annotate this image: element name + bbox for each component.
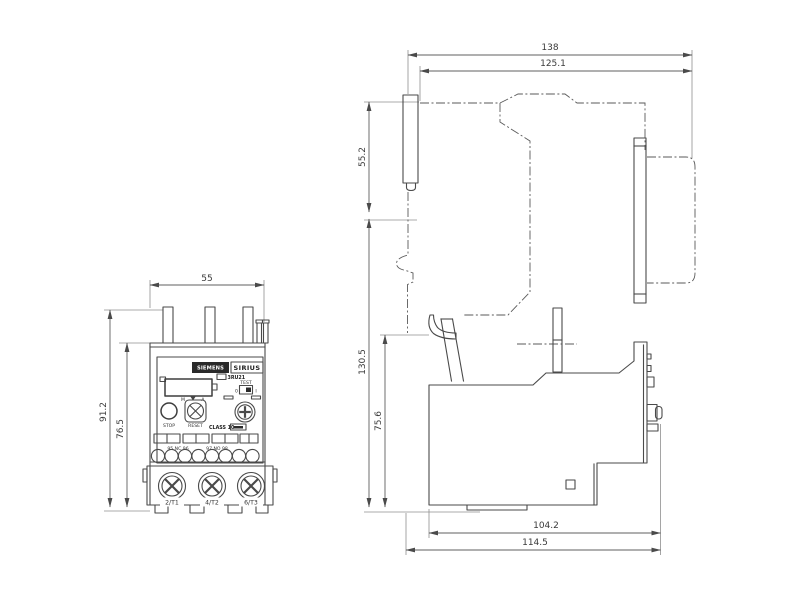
aux-post xyxy=(264,323,269,343)
stop-button[interactable] xyxy=(161,403,177,419)
scale-window xyxy=(165,379,212,396)
relay-side-outline xyxy=(429,308,662,510)
front-panel: SIEMENS SIRIUS 3RU21 M A STOP RESET TEST… xyxy=(151,362,264,507)
dim-label-height-upper: 55.2 xyxy=(358,147,368,167)
dim-label-front-height-total: 91.2 xyxy=(99,402,109,422)
stop-label: STOP xyxy=(163,423,175,429)
terminal-label-4T2: 4/T2 xyxy=(205,500,219,507)
main-terminal-3[interactable] xyxy=(238,473,265,500)
face-bump xyxy=(647,366,651,372)
side-view: 138 125.1 55.2 130.5 75.6 104.2 114.5 xyxy=(358,43,695,555)
test-on-label: I xyxy=(255,389,256,395)
main-terminal-1[interactable] xyxy=(159,473,186,500)
dial-min-label: M xyxy=(181,397,185,403)
terminal-label-6T3: 6/T3 xyxy=(244,500,258,507)
dim-label-depth-upper: 125.1 xyxy=(540,59,566,69)
contactor-mount-rail xyxy=(403,95,646,303)
detail-square xyxy=(566,480,575,489)
relay-body xyxy=(429,342,647,505)
contactor-phantom-outline xyxy=(397,94,696,344)
front-view: 55 91.2 76.5 xyxy=(99,274,277,513)
face-step xyxy=(647,424,658,431)
face-tab xyxy=(647,377,654,387)
dim-label-front-width: 55 xyxy=(201,274,212,284)
side-tab xyxy=(273,469,277,482)
dim-label-depth-base: 114.5 xyxy=(522,538,548,548)
dim-label-depth-total: 138 xyxy=(541,43,558,53)
dim-label-depth-body: 104.2 xyxy=(533,521,559,531)
side-dimension-lines: 138 125.1 55.2 130.5 75.6 104.2 114.5 xyxy=(358,43,692,550)
mounting-post xyxy=(205,307,215,343)
face-bump xyxy=(647,354,651,359)
model-box xyxy=(217,374,226,380)
aux-terminal-slots xyxy=(154,434,258,443)
side-tab xyxy=(143,469,147,482)
dim-label-height-total: 130.5 xyxy=(358,349,368,375)
test-switch-knob xyxy=(246,388,251,393)
mounting-post xyxy=(243,307,253,343)
main-terminal-2[interactable] xyxy=(199,473,226,500)
indicator-slot xyxy=(224,396,233,399)
series-label: SIRIUS xyxy=(234,364,261,372)
mounting-post xyxy=(163,307,173,343)
terminal-label-2T1: 2/T1 xyxy=(165,500,179,507)
brand-label: SIEMENS xyxy=(197,366,224,372)
dimension-drawing: 55 91.2 76.5 xyxy=(0,0,800,600)
test-off-label: 0 xyxy=(235,389,238,395)
indicator-slot xyxy=(252,396,261,399)
dim-label-height-lower: 75.6 xyxy=(374,411,384,431)
aux-post xyxy=(257,323,262,343)
reset-label: RESET xyxy=(188,423,203,429)
dim-label-front-height-body: 76.5 xyxy=(116,419,126,439)
drawing-svg: 55 91.2 76.5 xyxy=(0,0,800,600)
